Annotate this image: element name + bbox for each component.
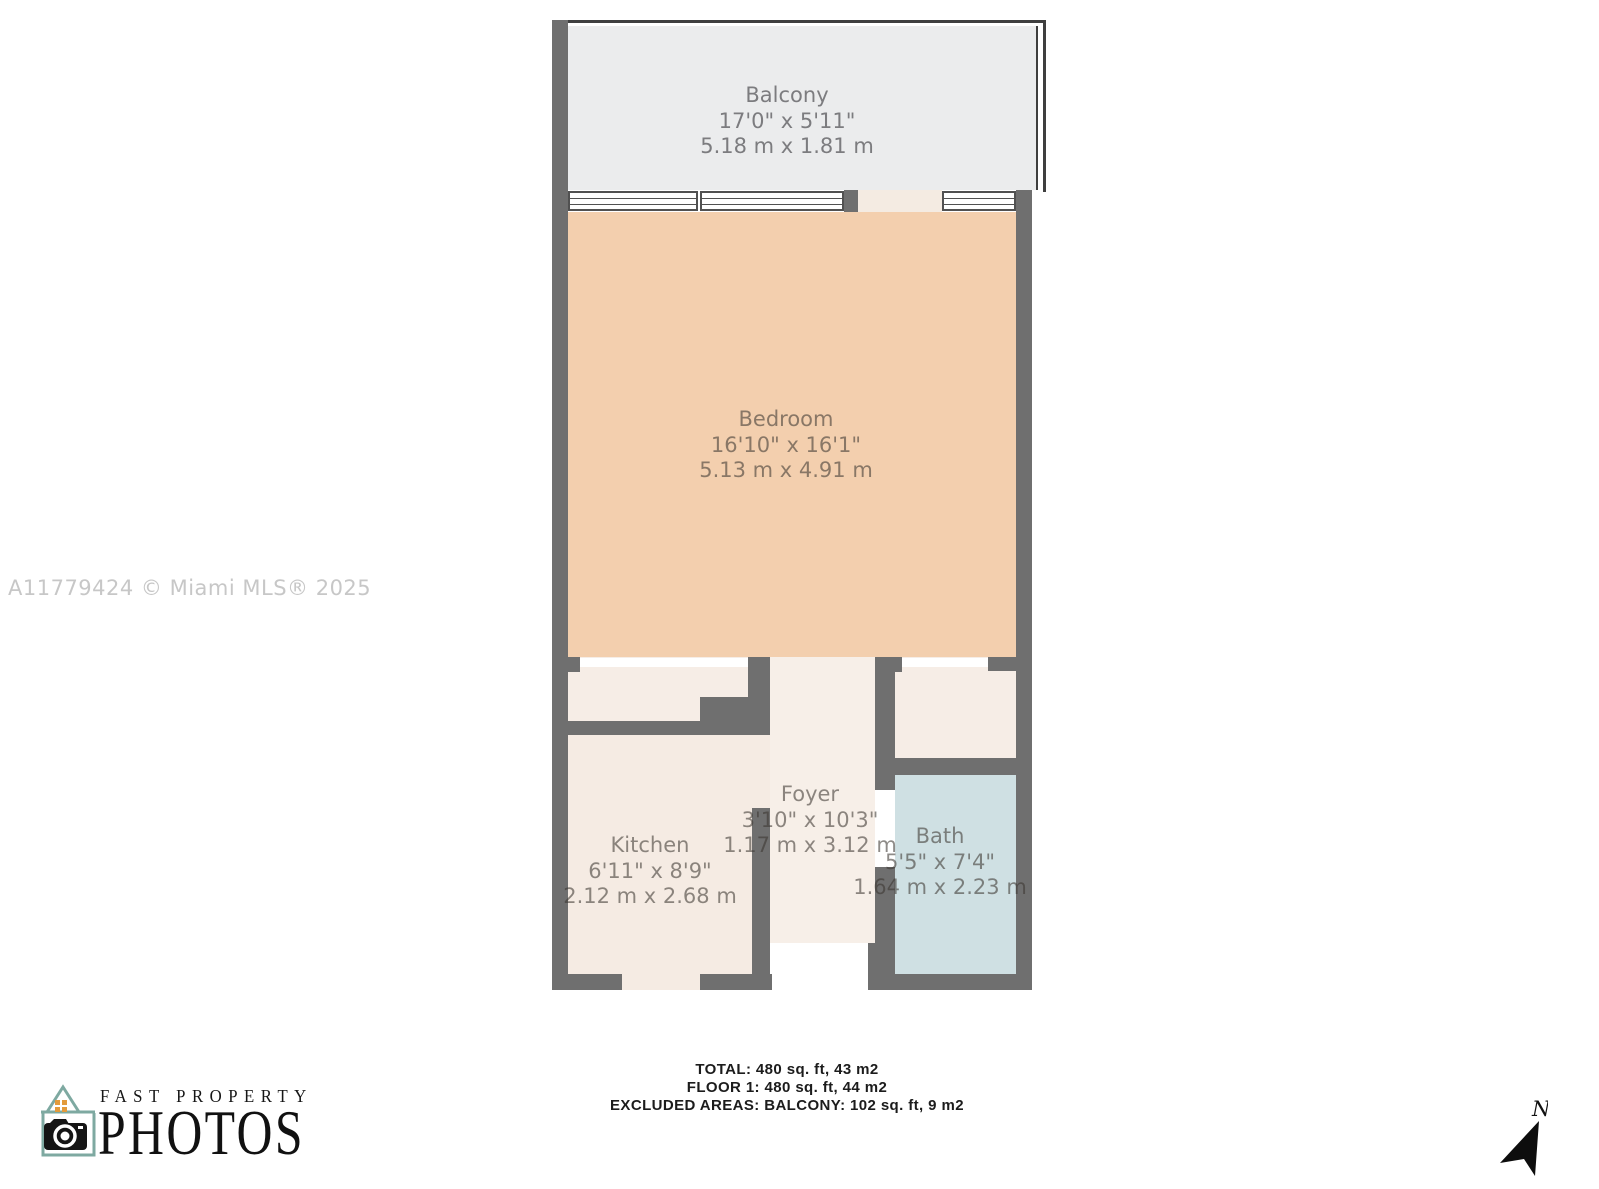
- summary-excluded: EXCLUDED AREAS: BALCONY: 102 sq. ft, 9 m…: [610, 1097, 964, 1115]
- closet2-topright-wall: [988, 657, 1016, 671]
- window-symbol: [700, 191, 844, 211]
- room-dims-imperial: 6'11" x 8'9": [563, 858, 737, 884]
- room-name: Foyer: [723, 782, 897, 808]
- logo-line2: PHOTOS: [98, 1102, 305, 1165]
- room-name: Kitchen: [563, 833, 737, 859]
- wall-post: [844, 190, 858, 212]
- room-dims-imperial: 5'5" x 7'4": [853, 849, 1027, 875]
- house-camera-icon: [36, 1080, 102, 1164]
- fast-property-photos-logo: FAST PROPERTY PHOTOS: [36, 1078, 346, 1168]
- closet-left-stub: [568, 657, 580, 672]
- summary-total: TOTAL: 480 sq. ft, 43 m2: [610, 1061, 964, 1079]
- room-label-bedroom: Bedroom 16'10" x 16'1" 5.13 m x 4.91 m: [699, 407, 873, 484]
- room-dims-metric: 2.12 m x 2.68 m: [563, 884, 737, 910]
- mls-watermark: A11779424 © Miami MLS® 2025: [8, 576, 371, 600]
- balcony-railing-right-inner: [1036, 26, 1038, 190]
- balcony-railing-right-outer: [1043, 20, 1046, 192]
- room-name: Bath: [853, 824, 1027, 850]
- closet2-left-stub: [875, 657, 902, 672]
- bedroom-closet-right-floor: [895, 657, 1016, 758]
- wall-bottom-left: [552, 974, 622, 990]
- north-label: N: [1531, 1097, 1548, 1121]
- kitchen-bottom-opening: [622, 974, 700, 990]
- room-dims-metric: 5.18 m x 1.81 m: [700, 134, 874, 160]
- room-dims-imperial: 17'0" x 5'11": [700, 108, 874, 134]
- closet-left-opening: [580, 658, 748, 667]
- kitchen-top-wall: [552, 721, 770, 735]
- summary-floor: FLOOR 1: 480 sq. ft, 44 m2: [610, 1079, 964, 1097]
- floor-plan-page: Balcony 17'0" x 5'11" 5.18 m x 1.81 m Be…: [0, 0, 1599, 1189]
- closet2-left-wall: [875, 672, 895, 758]
- room-label-bath: Bath 5'5" x 7'4" 1.64 m x 2.23 m: [853, 824, 1027, 901]
- north-arrow-icon: N: [1478, 1082, 1548, 1182]
- wall-bottom-center: [700, 974, 772, 990]
- window-symbol: [942, 191, 1016, 211]
- balcony-railing-top: [556, 20, 1046, 23]
- bath-top-wall: [875, 758, 1016, 775]
- window-symbol: [568, 191, 698, 211]
- room-dims-imperial: 16'10" x 16'1": [699, 432, 873, 458]
- room-dims-metric: 1.64 m x 2.23 m: [853, 875, 1027, 901]
- room-name: Bedroom: [699, 407, 873, 433]
- room-name: Balcony: [700, 83, 874, 109]
- area-summary: TOTAL: 480 sq. ft, 43 m2 FLOOR 1: 480 sq…: [610, 1061, 964, 1115]
- room-label-balcony: Balcony 17'0" x 5'11" 5.18 m x 1.81 m: [700, 83, 874, 160]
- room-dims-metric: 5.13 m x 4.91 m: [699, 458, 873, 484]
- room-label-kitchen: Kitchen 6'11" x 8'9" 2.12 m x 2.68 m: [563, 833, 737, 910]
- balcony-door-opening: [858, 190, 942, 212]
- closet-step-wall: [700, 697, 770, 721]
- closet2-opening: [902, 658, 988, 667]
- wall-bottom-right: [868, 974, 1032, 990]
